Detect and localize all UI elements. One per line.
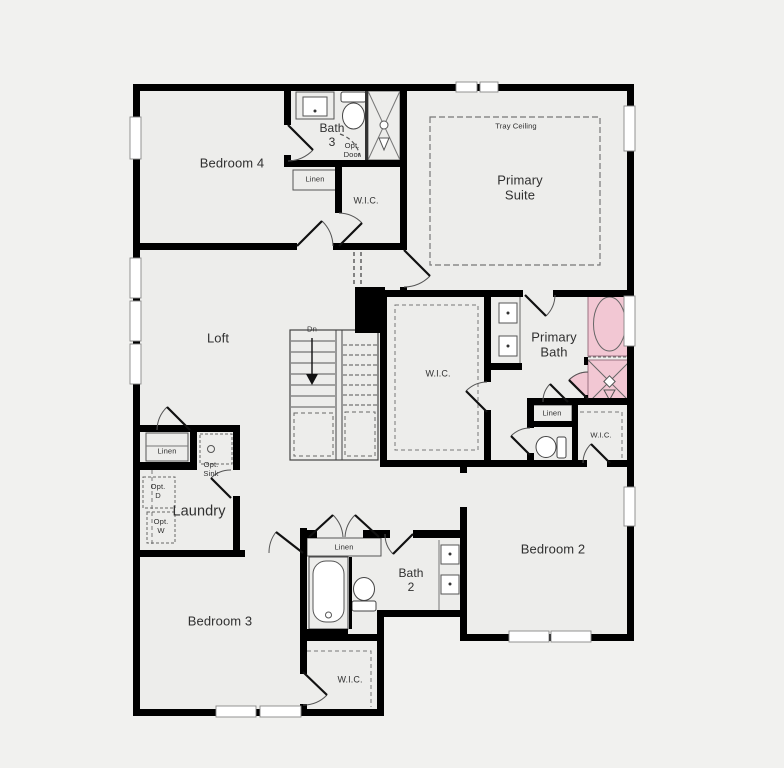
bath3-sink-icon <box>296 92 334 119</box>
room-label-primary-bath: Primary Bath <box>531 330 576 361</box>
label-linen-bath3: Linen <box>305 176 324 185</box>
window-icon <box>130 344 141 384</box>
window-icon <box>456 82 477 92</box>
room-label-bedroom-3: Bedroom 3 <box>188 613 253 628</box>
window-icon <box>260 706 301 717</box>
room-label-bath-2: Bath 2 <box>398 566 423 594</box>
window-icon <box>509 631 549 642</box>
window-icon <box>551 631 591 642</box>
label-opt-dryer: Opt. D <box>151 483 166 501</box>
label-opt-door: Opt. Door <box>344 142 361 160</box>
window-icon <box>130 301 141 341</box>
room-label-bedroom-4: Bedroom 4 <box>200 155 265 170</box>
room-label-wic-primary: W.I.C. <box>425 369 450 380</box>
window-icon <box>624 487 635 526</box>
room-label-wic-bath3: W.I.C. <box>353 196 378 207</box>
window-icon <box>480 82 498 92</box>
window-icon <box>130 258 141 298</box>
label-opt-sink: Opt. Sink <box>203 461 218 479</box>
room-label-laundry: Laundry <box>172 503 225 520</box>
hall-toilet-icon <box>536 437 566 459</box>
room-label-wic-bedroom2: W.I.C. <box>590 432 611 441</box>
floor-plan-drawing <box>0 0 784 768</box>
label-opt-washer: Opt. W <box>154 518 169 536</box>
bath3-shower-icon <box>365 91 400 160</box>
label-linen-loft: Linen <box>157 448 176 457</box>
label-stairs-down: Dn <box>307 326 317 335</box>
room-label-bedroom-2: Bedroom 2 <box>521 541 586 556</box>
window-icon <box>624 296 635 346</box>
label-tray-ceiling: Tray Ceiling <box>495 123 536 132</box>
window-icon <box>624 106 635 151</box>
window-icon <box>130 117 141 159</box>
bath3-toilet-icon <box>341 92 366 129</box>
room-label-loft: Loft <box>207 330 229 345</box>
room-label-wic-bedroom3: W.I.C. <box>337 675 362 686</box>
room-label-primary-suite: Primary Suite <box>497 173 542 204</box>
label-linen-primary: Linen <box>542 410 561 419</box>
label-linen-hall: Linen <box>334 544 353 553</box>
window-icon <box>216 706 256 717</box>
bath2-tub-icon <box>309 557 348 629</box>
room-label-bath-3: Bath 3 <box>319 121 344 149</box>
floor-plan-page: Bedroom 4 Bath 3 Opt. Door Linen W.I.C. … <box>0 0 784 768</box>
bath2-toilet-icon <box>352 578 376 612</box>
